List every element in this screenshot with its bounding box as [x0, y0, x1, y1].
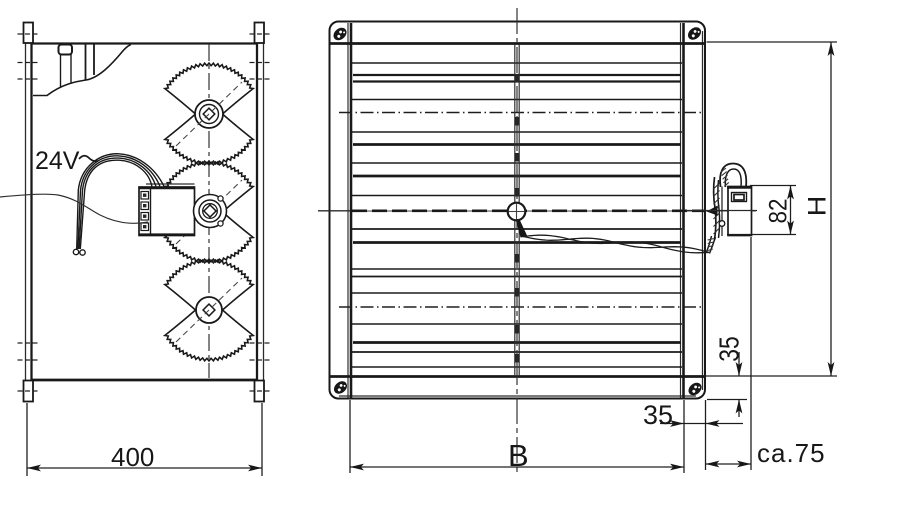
svg-text:ca.75: ca.75	[757, 438, 826, 468]
svg-text:82: 82	[764, 198, 792, 223]
svg-text:B: B	[508, 438, 529, 473]
svg-text:H: H	[803, 196, 831, 217]
svg-text:35: 35	[714, 336, 745, 362]
svg-text:400: 400	[111, 442, 154, 472]
svg-text:24V: 24V	[35, 147, 80, 175]
svg-text:35: 35	[643, 400, 673, 430]
